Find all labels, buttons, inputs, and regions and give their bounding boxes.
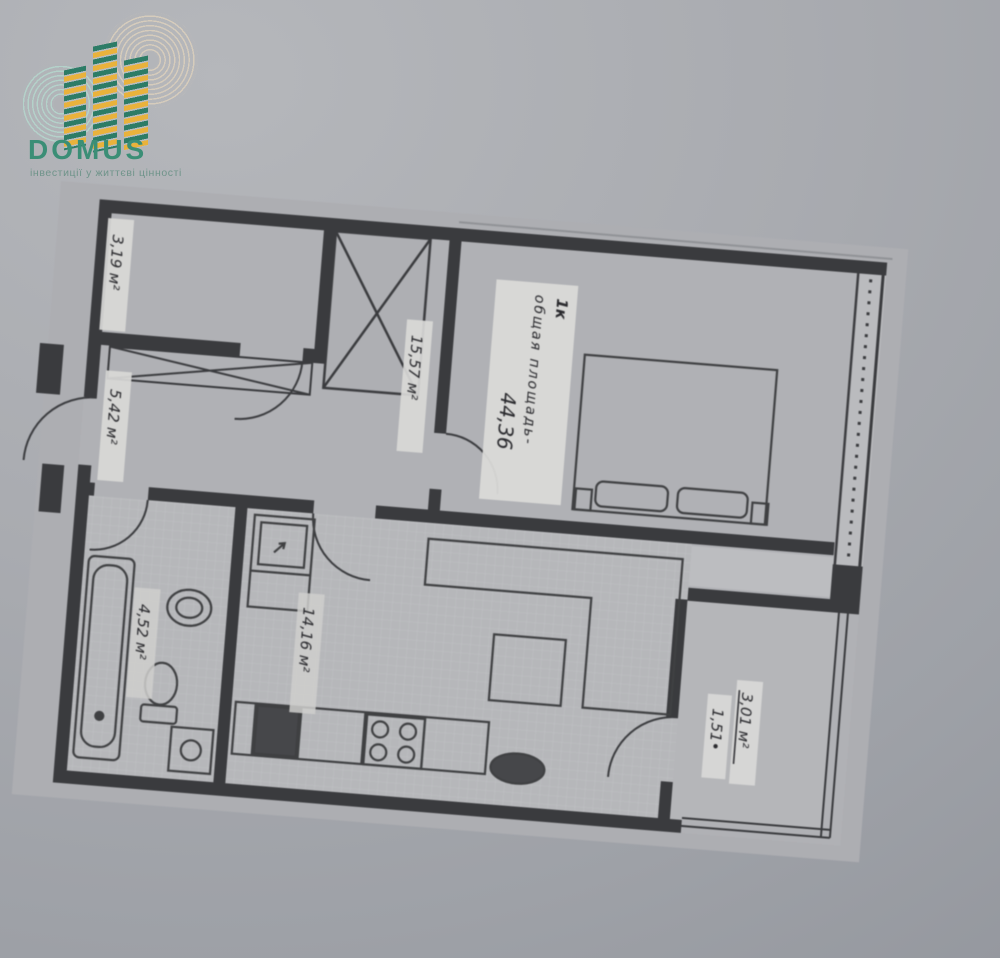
floorplan-photo: DOMUS інвестиції у життєві цінності [0,0,1000,958]
floor-plan: 3,19 м² 5,42 м² 15,57 м² 4,52 м² 14,16 м… [53,199,887,845]
apartment-type-label: 1к [552,298,572,321]
floor-plan-drawing: 3,19 м² 5,42 м² 15,57 м² 4,52 м² 14,16 м… [0,170,909,868]
balcony-reduced-area-label: 1,51• [706,708,727,752]
developer-logo: DOMUS інвестиції у життєві цінності [8,6,268,191]
brand-name: DOMUS [28,134,147,166]
logo-teal-ring [20,63,102,145]
kitchen-sink-unit [254,706,300,757]
total-area-value: 44,36 [492,392,521,451]
